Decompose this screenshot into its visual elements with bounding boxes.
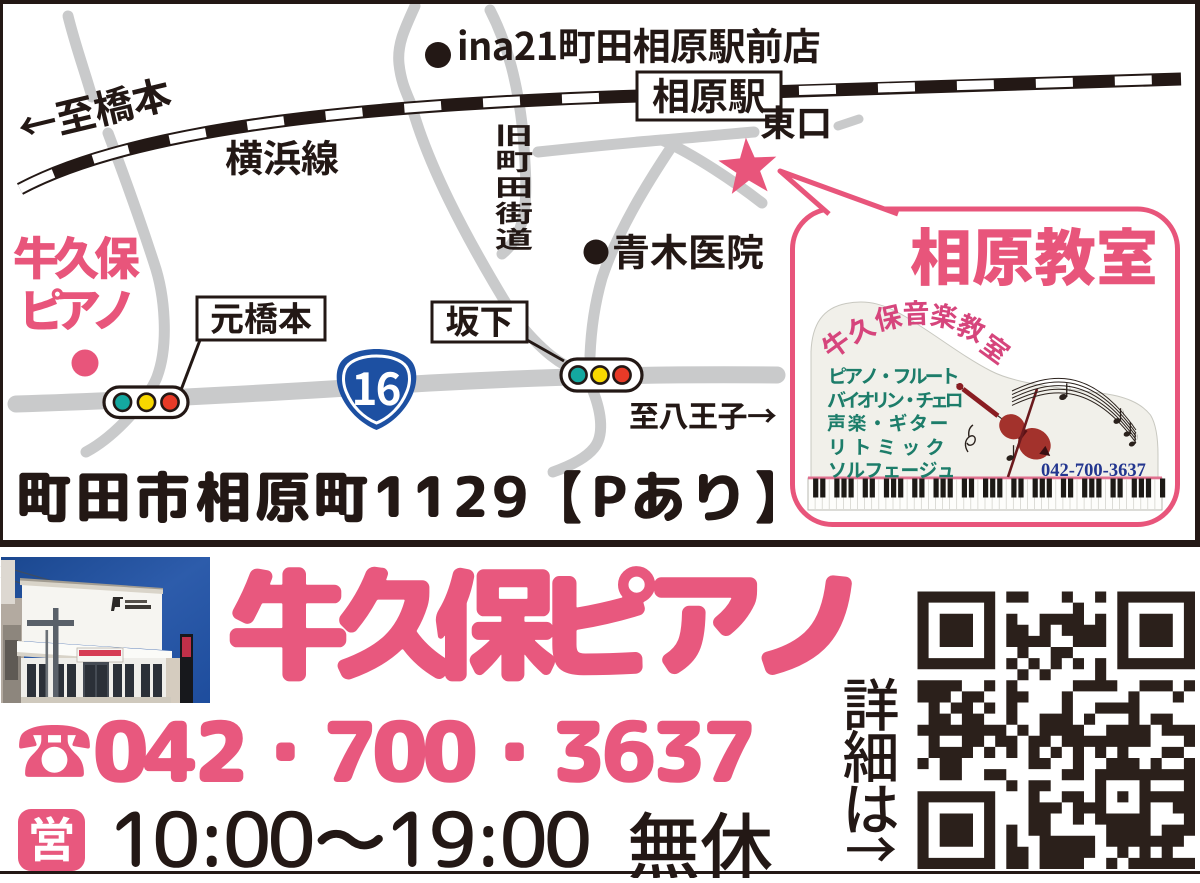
svg-text:042-700-3637: 042-700-3637 <box>1041 461 1146 481</box>
